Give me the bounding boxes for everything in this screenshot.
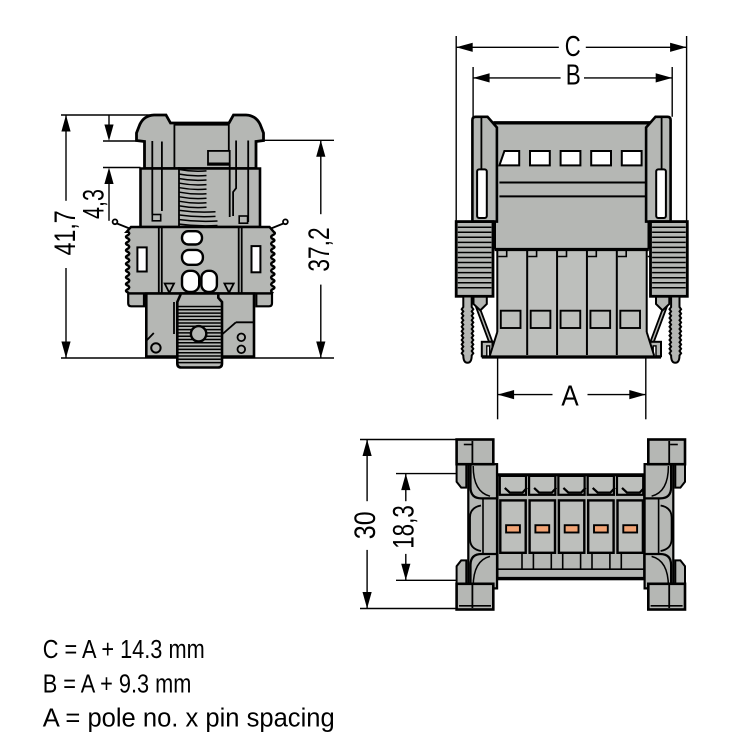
svg-text:30: 30 (349, 511, 382, 539)
svg-text:18,3: 18,3 (388, 505, 421, 549)
svg-text:B: B (566, 60, 581, 92)
svg-text:C: C (565, 31, 581, 63)
svg-text:A = pole no. x pin spacing: A = pole no. x pin spacing (43, 703, 335, 733)
svg-text:C = A + 14.3 mm: C = A + 14.3 mm (43, 634, 205, 664)
svg-text:A: A (561, 381, 578, 413)
svg-text:37,2: 37,2 (303, 227, 336, 271)
svg-text:B = A + 9.3 mm: B = A + 9.3 mm (43, 669, 192, 699)
svg-text:4,3: 4,3 (77, 189, 110, 219)
